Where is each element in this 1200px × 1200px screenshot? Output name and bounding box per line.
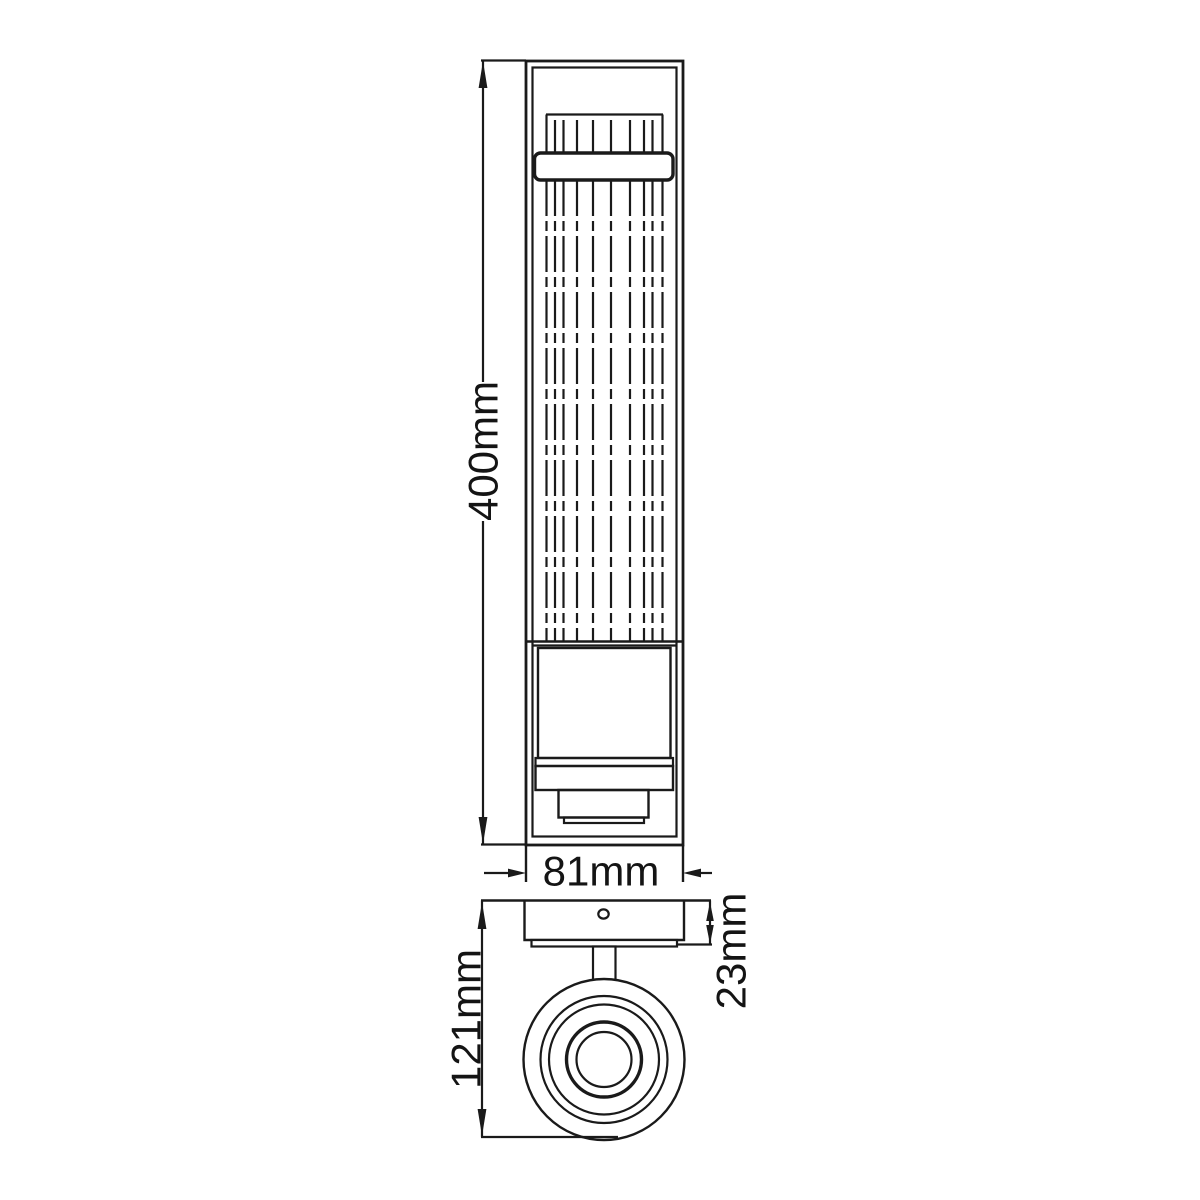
- dimension-overall-height: 400mm: [460, 61, 526, 846]
- arrow-up-icon: [479, 61, 488, 88]
- lamp-box: [538, 648, 671, 758]
- downlight-step-2: [564, 818, 644, 824]
- arrow-down-icon: [478, 1109, 487, 1136]
- dim-label-projection-depth: 121mm: [443, 949, 490, 1089]
- downlight-step-1: [559, 790, 649, 818]
- dimension-backplate-thickness: 23mm: [677, 893, 755, 1010]
- cylinder-outer-circle: [524, 979, 685, 1140]
- screw-hole: [598, 909, 608, 918]
- front-elevation-view: [526, 61, 683, 845]
- lamp-housing: [536, 648, 674, 823]
- technical-drawing-canvas: 400mm 81mm 121mm 23mm: [0, 0, 1200, 1200]
- dim-label-backplate-thickness: 23mm: [708, 893, 755, 1010]
- arrow-right-icon: [508, 869, 526, 878]
- housing-strip: [536, 758, 674, 766]
- dim-label-overall-width: 81mm: [543, 848, 660, 895]
- glass-flutes-upper: [547, 115, 663, 155]
- wall-backplate: [525, 901, 685, 941]
- arrow-up-icon: [478, 902, 487, 929]
- bottom-plan-view: [481, 901, 711, 1141]
- arrow-down-icon: [479, 817, 488, 844]
- fixture-neck: [593, 947, 616, 981]
- glass-collar-band: [535, 153, 674, 180]
- cylinder-end-view: [524, 979, 685, 1140]
- drawing-page: 400mm 81mm 121mm 23mm: [0, 0, 1200, 1200]
- dimension-overall-width: 81mm: [484, 845, 712, 895]
- reeded-glass-diffuser: [535, 115, 674, 642]
- glass-flutes-lower: [547, 180, 663, 641]
- housing-band: [536, 766, 674, 790]
- dim-label-overall-height: 400mm: [460, 381, 507, 521]
- arrow-left-icon: [683, 869, 701, 878]
